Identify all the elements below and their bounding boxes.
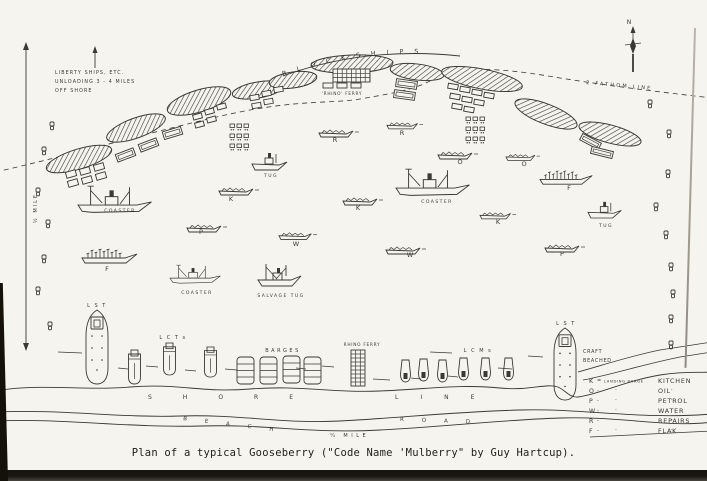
mooring-buoy [667,130,671,138]
mooring-dot [474,132,475,133]
buoy-top [42,147,46,151]
flak-gun-tip [563,171,566,172]
deckhouse [105,197,118,205]
ship-tug [588,202,621,218]
compass-north-label: N [627,19,632,26]
funnel [192,268,195,272]
scale-arrow-bottom [23,343,29,351]
ship-barge [387,123,423,129]
buoy-top [42,255,46,259]
funnel [428,173,432,179]
ship-barge [187,225,227,232]
mooring-mark [480,127,485,131]
mooring-mark [244,144,249,148]
mooring-dot [238,139,239,140]
legend-ditto: · · [615,387,699,394]
ship-barge [319,130,359,137]
mooring-buoy [648,100,652,108]
mooring-mark [466,117,471,121]
blockship [103,108,168,148]
beach-barge [283,356,300,383]
lcm-engine [507,371,511,377]
mooring-dot [481,122,482,123]
buoy-bottom [37,291,40,295]
lst-label: L S T [556,321,576,327]
mooring-dot [245,139,246,140]
lct-bow [207,347,214,352]
ship-tug [252,153,287,170]
derrick [199,269,205,278]
legend-dash: - [597,408,599,414]
blockship [577,117,643,151]
ship-coaster [170,265,220,283]
mooring-dot [233,149,234,150]
ship-label: TUG [598,223,613,229]
lcts-label: L C T s [159,335,186,341]
legend-dash: - [597,428,599,434]
mooring-mark [230,144,235,148]
shore-line-label: SHORE [148,394,324,401]
buoy-top [671,290,675,294]
coaster-hull [396,185,470,196]
moored-barge [207,116,217,123]
quarter-mile-label: ¼ MILE [330,433,369,439]
lst-dot [559,353,561,355]
cabin [265,158,273,164]
ship-label: COASTER [181,290,213,296]
mooring-mark [237,144,242,148]
flak-gun-tip [111,252,114,253]
mooring-mark [230,134,235,138]
ship-label: COASTER [421,199,453,205]
funnel [268,153,271,158]
compass-diamond [630,38,636,54]
deckhouse [423,180,436,188]
moored-barge [252,102,262,108]
lst-hull [554,328,576,400]
flak-gun-tip [548,172,551,173]
flak-gun-tip [552,174,555,175]
barge-deck [548,245,571,248]
mooring-mark [466,137,471,141]
moored-barge [115,148,136,162]
ship-lcm [401,360,411,382]
buoy-top [667,130,671,134]
beach-contour [578,342,707,372]
moored-barge [450,93,461,100]
mooring-dot [247,149,248,150]
water-edge-dash [430,352,452,353]
lst-dot [91,335,93,337]
moored-barge [472,89,483,96]
buoy-top [654,203,658,207]
ship-label: O [457,158,462,166]
ship-barge [219,188,259,195]
buoy-top [669,341,673,345]
mooring-mark [480,117,485,121]
ship-lcm [438,360,448,382]
water-edge-dash [185,370,196,371]
moored-barge [464,106,475,113]
ship-lst [554,328,576,400]
mooring-dot [476,132,477,133]
mooring-dot [483,132,484,133]
ship-salvage [258,264,301,286]
legend-value: REPAIRS [658,417,690,425]
mooring-mark [230,124,235,128]
buoy-top [48,322,52,326]
moored-barge [452,103,463,110]
fathom-line-label: 2 FATHOM LINE [586,80,653,92]
lst-dot [91,359,93,361]
flak-gun-tip [103,251,106,252]
mooring-buoy [666,170,670,178]
buoy-top [648,100,652,104]
rhino-ferry-beach [351,350,365,386]
mooring-dot [467,122,468,123]
mooring-dot [247,139,248,140]
moored-barge [462,96,473,103]
mooring-buoy [669,341,673,349]
ship-flak [540,171,592,184]
ship-barge [343,198,383,205]
tug-hull [252,162,287,170]
moored-barge [250,94,260,100]
water-edge-dash [225,369,237,370]
flak-gun-tip [556,171,559,172]
ship-barge [545,245,585,252]
legend-ditto: · · [615,427,699,434]
barge-deck [322,130,345,133]
craft-beached-label: CRAFT [583,349,602,355]
legend-value: OIL [658,387,671,395]
lst-dot [564,386,566,388]
mooring-dot [469,122,470,123]
flak-gun-tip [115,250,118,251]
beach-barge [304,357,321,384]
legend-value: KITCHEN [658,377,691,385]
ship-label: W [293,240,300,248]
barge-deck [282,233,304,236]
scale-arrow-top [23,42,29,50]
water-edge-dash [373,379,390,380]
legend-ditto: · · [615,407,699,414]
buoy-bottom [43,259,46,263]
liberty-note-line: LIBERTY SHIPS, ETC. [55,70,124,76]
lct-bow [131,350,138,356]
blockship-hull [577,117,643,151]
flak-gun-tip [575,175,578,176]
mooring-dot [469,142,470,143]
mooring-dot [474,142,475,143]
mooring-dot [469,132,470,133]
buoy-bottom [649,104,652,108]
moored-barge [81,176,92,185]
barges-label: BARGES [265,348,301,354]
lct-bow [166,343,173,349]
moored-barge [448,83,459,90]
moored-barge [262,90,272,96]
water-edge-dash [296,368,306,369]
barge-deck [483,213,504,216]
funnel [277,268,280,273]
lcm-engine [441,373,445,379]
flak-gun-tip [571,172,574,173]
lst-dot [96,369,98,371]
rhino-beach-label: RHINO FERRY [344,342,381,348]
mooring-buoy [50,122,54,130]
buoy-top [669,263,673,267]
water-edge-dash [146,366,158,367]
barge-deck [509,154,529,157]
water-edge-dash [528,356,543,357]
ship-lct [205,347,217,377]
caption: Plan of a typical Gooseberry ("Code Name… [0,447,707,459]
buoy-top [669,315,673,319]
mooring-dot [240,139,241,140]
liberty-note-line: UNLOADING 3 - 4 MILES [55,79,135,85]
barge-deck [346,198,369,201]
mooring-dot [233,129,234,130]
barge-hull [386,248,420,254]
flak-gun-tip [87,253,90,254]
buoy-top [36,287,40,291]
mooring-dot [476,142,477,143]
beach-barge [260,357,277,384]
moored-barge [337,83,347,88]
lst-hatch [562,338,568,345]
salvage-hull [258,276,301,286]
moored-barge [460,86,471,93]
lcm-engine [404,373,408,379]
buoy-bottom [670,267,673,271]
mooring-buoy [46,220,50,228]
lst-dot [101,359,103,361]
flak-hull [82,254,137,263]
ship-lcm [481,358,491,380]
ship-label: COASTER [104,208,136,214]
barge-hull [506,155,535,160]
rhino-ladder [351,350,365,386]
coaster-hull [170,276,220,283]
ship-label: SALVAGE TUG [257,293,304,299]
blockship [512,93,581,135]
funnel [110,190,114,196]
liberty-note-line: OFF SHORE [55,88,93,94]
lcms-label: L C M s [464,348,492,354]
water-edge-dash [498,368,512,369]
moored-barge [484,92,495,99]
moored-barge [590,146,613,158]
mooring-dot [240,149,241,150]
beach-road-label: ROAD [400,417,488,426]
mooring-dot [238,129,239,130]
half-mile-label: ½ MILE [32,193,39,223]
moored-barge [474,99,485,106]
beach-barge [237,357,254,384]
buoy-bottom [655,207,658,211]
ship-coaster [396,169,470,195]
mooring-dot [245,129,246,130]
water-edge-dash [448,376,458,377]
buoy-top [46,220,50,224]
barge-hull [438,153,472,159]
mooring-dot [240,129,241,130]
ship-flak [82,249,137,263]
legend-key: R [589,418,594,425]
buoy-bottom [668,134,671,138]
mooring-buoy [669,263,673,271]
water-edge-dash [322,366,334,367]
mooring-dot [231,129,232,130]
deckhouse [189,272,198,278]
moored-barge [323,83,333,88]
flak-gun-tip [567,174,570,175]
ship-label: R [333,136,338,144]
mooring-dot [483,142,484,143]
legend-key: P [589,398,593,405]
legend-dash: = [597,378,601,384]
flak-gun-tip [559,173,562,174]
legend-dash: - [597,398,599,404]
moored-barge [394,90,416,101]
buoy-bottom [672,294,675,298]
moored-barge [396,79,418,90]
legend-value: PETROL [658,397,688,405]
mooring-dot [483,122,484,123]
ship-label: F [105,265,109,273]
lst-hatch [94,320,100,327]
beach-road-upper [0,410,707,422]
rhino-top-label: 'RHINO' FERRY [322,91,362,97]
scan-edge-bottom [0,470,707,481]
craft-beached-label: BEACHED [583,358,612,364]
mooring-dot [231,149,232,150]
lst-label: L S T [87,303,107,309]
ship-label: K [356,204,361,212]
flak-gun-tip [91,250,94,251]
barge-deck [390,123,411,126]
mooring-dot [233,139,234,140]
ship-lct [129,350,141,384]
lst-dot [101,335,103,337]
mooring-mark [473,137,478,141]
mooring-mark [244,134,249,138]
ship-label: R [400,129,405,137]
legend-value: WATER [658,407,684,415]
flak-gun-tip [544,175,547,176]
lst-hull [86,310,108,384]
legend-key: O [589,388,594,395]
barge-deck [441,152,464,155]
mooring-buoy [42,147,46,155]
flak-gun-tip [119,253,122,254]
beach-contour [583,352,707,380]
lst-dot [559,376,561,378]
mooring-buoy [654,203,658,211]
legend-value: FLAK [658,427,677,435]
buoy-bottom [51,126,54,130]
buoy-bottom [670,319,673,323]
water-edge-dash [118,368,128,369]
mooring-mark [237,124,242,128]
buoy-top [666,170,670,174]
moored-barge [67,179,78,188]
mooring-dot [231,139,232,140]
derrick [179,268,187,277]
moored-barge [138,138,159,152]
derrick [438,174,447,187]
ship-label: O [521,160,526,168]
moored-barge [264,98,274,104]
lst-dot [559,364,561,366]
barge-deck [389,247,412,250]
derrick [409,173,421,186]
moored-barge [95,172,106,181]
rhino-ferry-top [333,69,370,82]
ship-label: K [229,195,234,203]
ship-label: P [560,250,564,258]
blockship-hull [103,108,168,148]
buoy-bottom [49,326,52,330]
ship-lcm [419,359,429,381]
mooring-dot [481,132,482,133]
ship-label: TUG [263,173,278,179]
buoy-bottom [43,151,46,155]
ship-barge [279,233,317,240]
mooring-mark [237,134,242,138]
lcm-engine [462,371,466,377]
moored-barge [274,86,284,92]
mooring-dot [247,129,248,130]
flak-gun-tip [95,252,98,253]
mooring-dot [238,149,239,150]
mooring-mark [473,117,478,121]
ship-label: P [199,228,203,236]
funnel [603,202,606,207]
mooring-dot [467,142,468,143]
mooring-mark [473,127,478,131]
mooring-dot [474,122,475,123]
mooring-mark [480,137,485,141]
legend-key: W [589,408,595,415]
ship-label: W [407,251,414,259]
flak-gun-tip [107,249,110,250]
compass-arrow-head [631,26,636,33]
moored-barge [351,83,361,88]
legend-dash: - [597,418,599,424]
mooring-mark [244,124,249,128]
buoy-top [50,122,54,126]
legend-ditto-source: LANDING BARGE [604,379,644,384]
legend-key: K [589,378,594,385]
moored-barge [195,121,205,128]
ship-lcm [459,358,469,380]
flak-gun-tip [99,249,102,250]
buoy-top [36,188,40,192]
mooring-buoy [669,315,673,323]
liberty-arrow-head [93,46,98,53]
barge-deck [222,188,245,191]
ship-lct [164,343,176,375]
mooring-dot [476,122,477,123]
mooring-mark [466,127,471,131]
blockship-hull [512,93,581,135]
mooring-cluster [230,124,249,151]
mooring-buoy [36,287,40,295]
shore-line-label: LINE [395,394,496,401]
buoy-bottom [665,235,668,239]
